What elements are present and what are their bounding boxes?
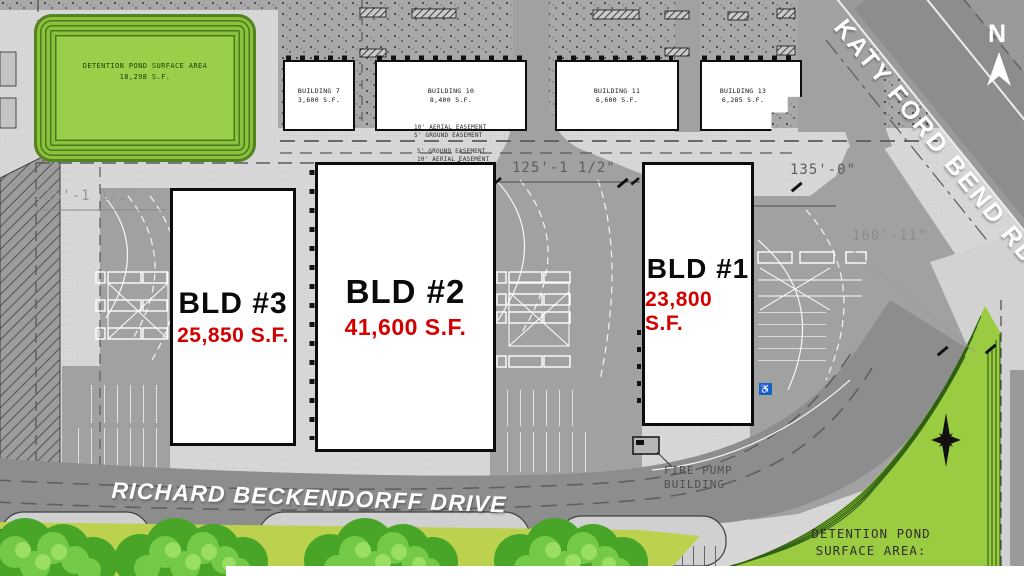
bld-1-name: BLD #1 [647,253,749,285]
pond-nw-area: 18,298 S.F. [37,72,253,83]
building-11-area: 6,600 S.F. [594,96,640,105]
easement-note-north: 10' AERIAL EASEMENT 5' GROUND EASEMENT [414,124,486,140]
bld-3-area: 25,850 S.F. [177,324,289,348]
dimension-center: 125'-1 1/2" [512,160,616,176]
detention-pond-northwest: DETENTION POND SURFACE AREA 18,298 S.F. [34,14,256,162]
bld-1-area: 23,800 S.F. [645,288,751,336]
dimension-west: 125'-1 1/2" [34,188,138,204]
pond-nw-title: DETENTION POND SURFACE AREA [37,61,253,72]
building-7: BUILDING 73,600 S.F. [283,60,355,131]
bld-1: BLD #1 23,800 S.F. [642,162,754,426]
bld-2-area: 41,600 S.F. [345,314,467,341]
building-10: BUILDING 108,400 S.F. [375,60,527,131]
site-plan: DETENTION POND SURFACE AREA 18,298 S.F. … [0,0,1024,576]
north-label: N [988,20,1006,49]
dimension-southeast: 160'-11" [852,228,927,244]
bld-2-name: BLD #2 [346,273,466,311]
building-7-area: 3,600 S.F. [298,96,340,105]
accessible-parking-icon: ♿ [759,383,772,395]
building-11: BUILDING 116,600 S.F. [555,60,679,131]
fire-pump-label: FIRE PUMP BUILDING [664,464,733,492]
building-13-area: 6,285 S.F. [720,96,766,105]
bld-2: BLD #2 41,600 S.F. [315,162,496,452]
building-10-name: BUILDING 10 [428,87,474,96]
pond-se-label: DETENTION POND SURFACE AREA: [796,526,946,560]
building-7-name: BUILDING 7 [298,87,340,96]
building-10-area: 8,400 S.F. [428,96,474,105]
building-11-name: BUILDING 11 [594,87,640,96]
building-13-name: BUILDING 13 [720,87,766,96]
dimension-east: 135'-0" [790,162,856,178]
bld-3-name: BLD #3 [178,287,287,321]
bld-3: BLD #3 25,850 S.F. [170,188,296,446]
